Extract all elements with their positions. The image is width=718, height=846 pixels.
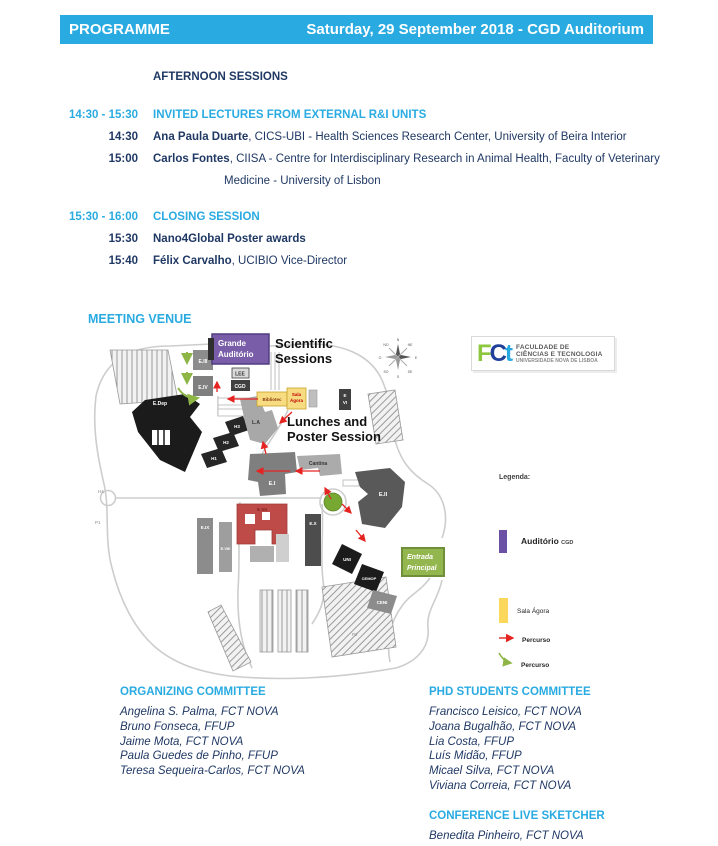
legend-label-percurso-green: Percurso xyxy=(521,662,549,669)
fct-nova-logo: FCt FACULDADE DE CIÊNCIAS E TECNOLOGIA U… xyxy=(471,336,615,371)
label-eiv: E.IV xyxy=(198,385,208,391)
committee-member: Luís Midão, FFUP xyxy=(429,749,718,764)
session-time-range: 14:30 - 15:30 xyxy=(60,109,138,121)
compass-icon: N S E O NE SE SO NO xyxy=(379,338,418,379)
item-detail: , CIISA - Centre for Interdisciplinary R… xyxy=(230,153,660,165)
item-time: 15:00 xyxy=(60,153,138,165)
svg-text:N: N xyxy=(397,338,400,342)
label-eiii: E.III xyxy=(199,359,209,365)
svg-text:SO: SO xyxy=(383,370,388,374)
header-bar: PROGRAMME Saturday, 29 September 2018 - … xyxy=(60,15,653,44)
item-detail-continuation: Medicine - University of Lisbon xyxy=(224,175,381,187)
item-speaker: Carlos Fontes xyxy=(153,153,230,165)
label-h3: H3 xyxy=(234,424,240,429)
svg-text:S: S xyxy=(397,375,400,379)
label-evi-2: VI xyxy=(343,400,347,405)
programme-page: PROGRAMME Saturday, 29 September 2018 - … xyxy=(0,0,718,846)
session-title: CLOSING SESSION xyxy=(153,211,260,223)
label-h4: H4 xyxy=(98,489,104,494)
label-eviii: E.VIII xyxy=(221,546,231,551)
label-ceni: CENI xyxy=(377,600,388,605)
legend-title: Legenda: xyxy=(499,474,530,481)
item-detail: , CICS-UBI - Health Sciences Research Ce… xyxy=(248,131,626,143)
committee-title-sketcher: CONFERENCE LIVE SKETCHER xyxy=(429,810,718,822)
label-p2: P2 xyxy=(352,632,358,637)
annotation-scientific-2: Sessions xyxy=(275,351,332,366)
label-h1: H1 xyxy=(211,456,217,461)
committee-member: Benedita Pinheiro, FCT NOVA xyxy=(429,829,718,844)
session-item: 15:00Carlos Fontes, CIISA - Centre for I… xyxy=(60,153,700,165)
label-uni: UNI xyxy=(343,557,351,562)
label-grande-2: Auditório xyxy=(218,350,254,359)
venue-title: MEETING VENUE xyxy=(88,312,192,326)
item-time: 15:40 xyxy=(60,255,138,267)
label-la: L.A xyxy=(252,420,260,426)
label-bibliotec: Bibliotec xyxy=(262,397,281,402)
item-time: 14:30 xyxy=(60,131,138,143)
annotation-scientific-1: Scientific xyxy=(275,336,333,351)
label-cantina: Cantina xyxy=(309,461,328,467)
svg-text:NE: NE xyxy=(408,343,414,347)
committee-member: Jaime Mota, FCT NOVA xyxy=(120,735,420,750)
label-agora: Ágora xyxy=(290,397,303,403)
campus-map: E.Dep H3 H2 H1 L.A E.III E.IV LEE CGD Bi… xyxy=(90,332,465,682)
item-speaker: Nano4Global Poster awards xyxy=(153,233,306,245)
label-eii: E.II xyxy=(379,492,388,498)
committee-member: Teresa Sequeira-Carlos, FCT NOVA xyxy=(120,764,420,779)
label-sala: Sala xyxy=(292,392,302,397)
svg-text:NO: NO xyxy=(383,343,389,347)
header-date-location: Saturday, 29 September 2018 - CGD Audito… xyxy=(306,21,644,38)
svg-text:SE: SE xyxy=(408,370,413,374)
phd-students-committee: PHD STUDENTS COMMITTEE Francisco Leisico… xyxy=(429,686,718,844)
session-title: INVITED LECTURES FROM EXTERNAL R&I UNITS xyxy=(153,109,426,121)
item-speaker: Ana Paula Duarte xyxy=(153,131,248,143)
legend-red-arrow-icon xyxy=(497,633,519,643)
label-lee: LEE xyxy=(235,372,245,378)
grande-auditorio-box: Grande Auditório xyxy=(208,334,269,364)
svg-text:E: E xyxy=(415,356,418,360)
committee-member: Lia Costa, FFUP xyxy=(429,735,718,750)
committee-member: Micael Silva, FCT NOVA xyxy=(429,764,718,779)
session-block-header: 15:30 - 16:00CLOSING SESSION xyxy=(60,211,700,223)
entrada-principal-box: Entrada Principal xyxy=(402,548,444,576)
committee-member: Bruno Fonseca, FFUP xyxy=(120,720,420,735)
legend-label-sala-agora: Sala Ágora xyxy=(517,608,549,615)
label-evi-1: E xyxy=(343,393,346,398)
label-eix: E.IX xyxy=(201,525,210,530)
annotation-lunches-2: Poster Session xyxy=(287,429,381,444)
item-time: 15:30 xyxy=(60,233,138,245)
fct-logotype: FCt xyxy=(477,342,511,366)
session-block-header: 14:30 - 15:30INVITED LECTURES FROM EXTER… xyxy=(60,109,700,121)
organizing-committee: ORGANIZING COMMITTEE Angelina S. Palma, … xyxy=(120,686,420,779)
legend-swatch-auditorio xyxy=(499,530,507,553)
annotation-lunches-1: Lunches and xyxy=(287,414,367,429)
legend-swatch-sala-agora xyxy=(499,598,508,623)
building-eii xyxy=(355,468,405,528)
page-title: PROGRAMME xyxy=(69,21,170,38)
label-ei: E.I xyxy=(269,481,276,487)
committee-member: Joana Bugalhão, FCT NOVA xyxy=(429,720,718,735)
session-item: 15:40Félix Carvalho, UCIBIO Vice-Directo… xyxy=(60,255,700,267)
session-time-range: 15:30 - 16:00 xyxy=(60,211,138,223)
committee-title: ORGANIZING COMMITTEE xyxy=(120,686,420,698)
legend-label-percurso-red: Percurso xyxy=(522,637,550,644)
fct-logo-text: FACULDADE DE CIÊNCIAS E TECNOLOGIA UNIVE… xyxy=(516,344,603,364)
session-item: 15:30Nano4Global Poster awards xyxy=(60,233,700,245)
committee-member: Angelina S. Palma, FCT NOVA xyxy=(120,705,420,720)
item-detail: , UCIBIO Vice-Director xyxy=(232,255,347,267)
building-ei xyxy=(248,452,297,496)
committee-member: Viviana Correia, FCT NOVA xyxy=(429,779,718,794)
label-evii: E.VII xyxy=(257,507,267,512)
label-grande-1: Grande xyxy=(218,339,247,348)
svg-text:O: O xyxy=(379,356,382,360)
label-cemop: CEMOP xyxy=(362,576,377,581)
committee-member: Paula Guedes de Pinho, FFUP xyxy=(120,749,420,764)
committee-title: PHD STUDENTS COMMITTEE xyxy=(429,686,718,698)
label-entrada-1: Entrada xyxy=(407,554,433,561)
section-title-afternoon: AFTERNOON SESSIONS xyxy=(153,71,288,83)
item-speaker: Félix Carvalho xyxy=(153,255,232,267)
legend-green-arrow-icon xyxy=(496,650,518,668)
label-entrada-2: Principal xyxy=(407,565,438,572)
label-p1: P1 xyxy=(95,520,101,525)
label-cgd: CGD xyxy=(234,384,246,390)
session-item: 14:30Ana Paula Duarte, CICS-UBI - Health… xyxy=(60,131,700,143)
label-h2: H2 xyxy=(223,440,229,445)
roundabout-green xyxy=(324,493,342,511)
label-edep: E.Dep xyxy=(153,401,167,407)
legend-label-auditorio: Auditório CGD xyxy=(521,536,573,546)
committee-member: Francisco Leisico, FCT NOVA xyxy=(429,705,718,720)
label-ex: E.X xyxy=(309,521,316,526)
